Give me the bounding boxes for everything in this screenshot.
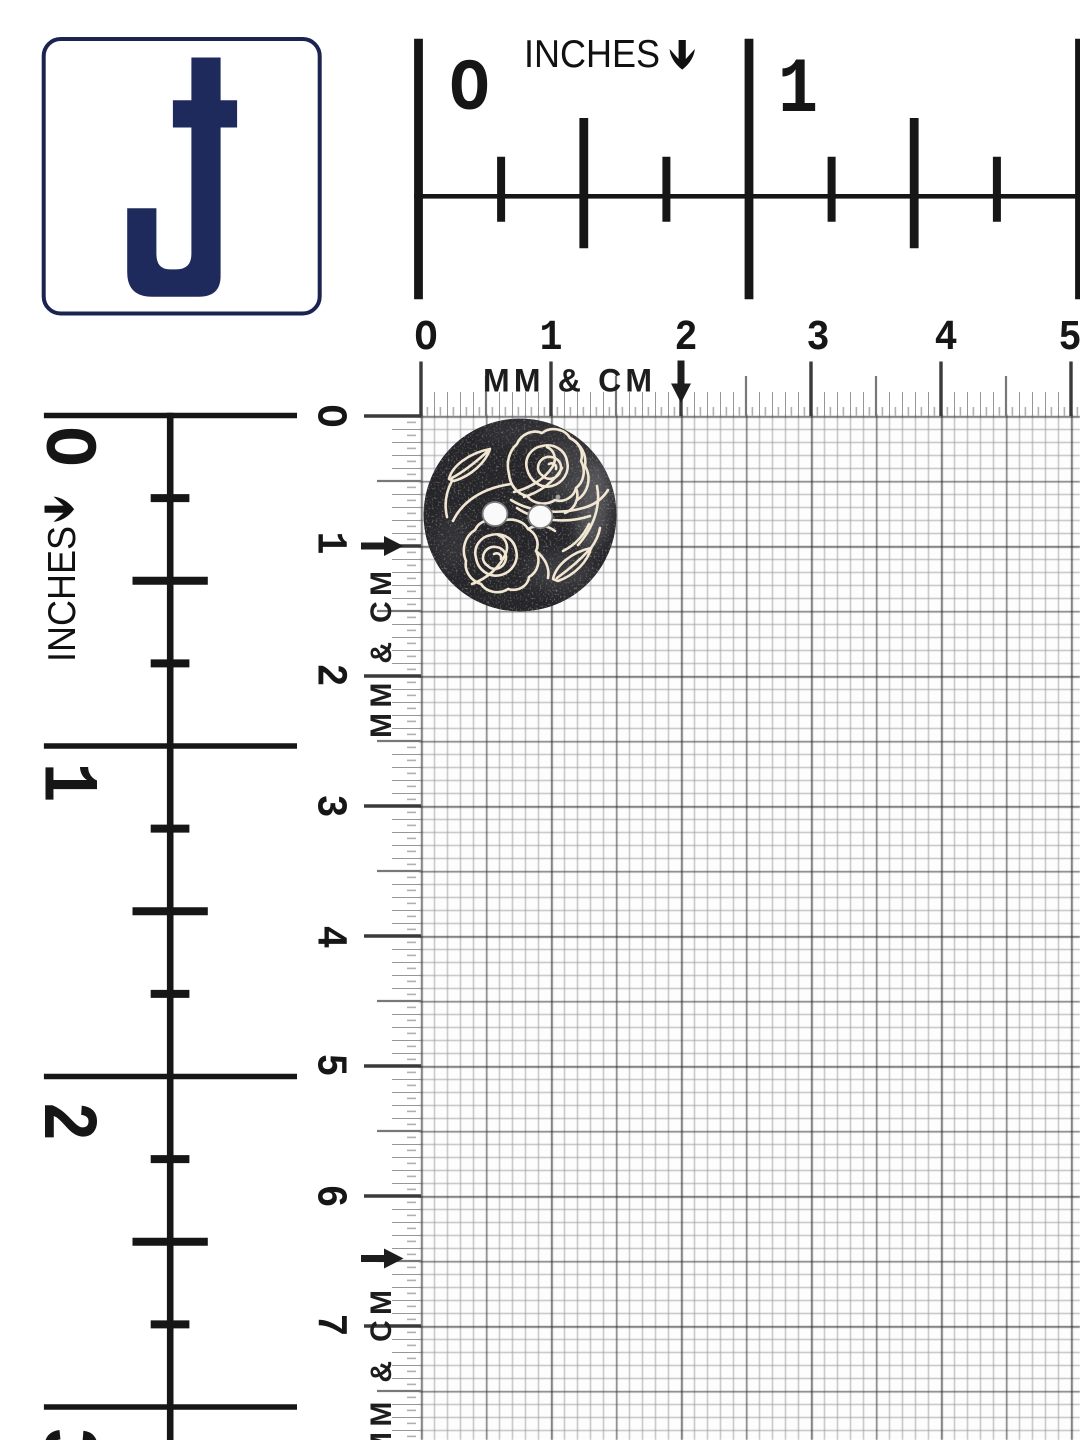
svg-text:INCHES: INCHES bbox=[41, 526, 84, 662]
svg-text:3: 3 bbox=[22, 1427, 110, 1440]
svg-text:INCHES: INCHES bbox=[524, 33, 660, 76]
svg-text:2: 2 bbox=[675, 313, 698, 362]
svg-text:2: 2 bbox=[21, 1101, 109, 1141]
svg-text:1: 1 bbox=[306, 532, 355, 555]
svg-text:4: 4 bbox=[935, 313, 958, 362]
svg-text:7: 7 bbox=[306, 1314, 355, 1337]
svg-text:3: 3 bbox=[306, 795, 355, 818]
svg-text:O: O bbox=[306, 405, 355, 428]
svg-text:MM & CM: MM & CM bbox=[483, 363, 652, 399]
svg-text:5: 5 bbox=[1059, 313, 1080, 362]
svg-text:3: 3 bbox=[807, 313, 830, 362]
svg-text:5: 5 bbox=[306, 1054, 355, 1077]
svg-text:1: 1 bbox=[778, 47, 818, 135]
svg-text:MM & CM: MM & CM bbox=[365, 1290, 398, 1440]
svg-text:O: O bbox=[415, 313, 438, 362]
svg-text:1: 1 bbox=[22, 763, 110, 803]
svg-text:4: 4 bbox=[306, 926, 355, 949]
svg-text:1: 1 bbox=[540, 313, 563, 362]
svg-text:O: O bbox=[450, 48, 490, 131]
svg-text:O: O bbox=[25, 427, 108, 467]
svg-text:6: 6 bbox=[306, 1185, 355, 1208]
svg-text:2: 2 bbox=[306, 664, 355, 687]
